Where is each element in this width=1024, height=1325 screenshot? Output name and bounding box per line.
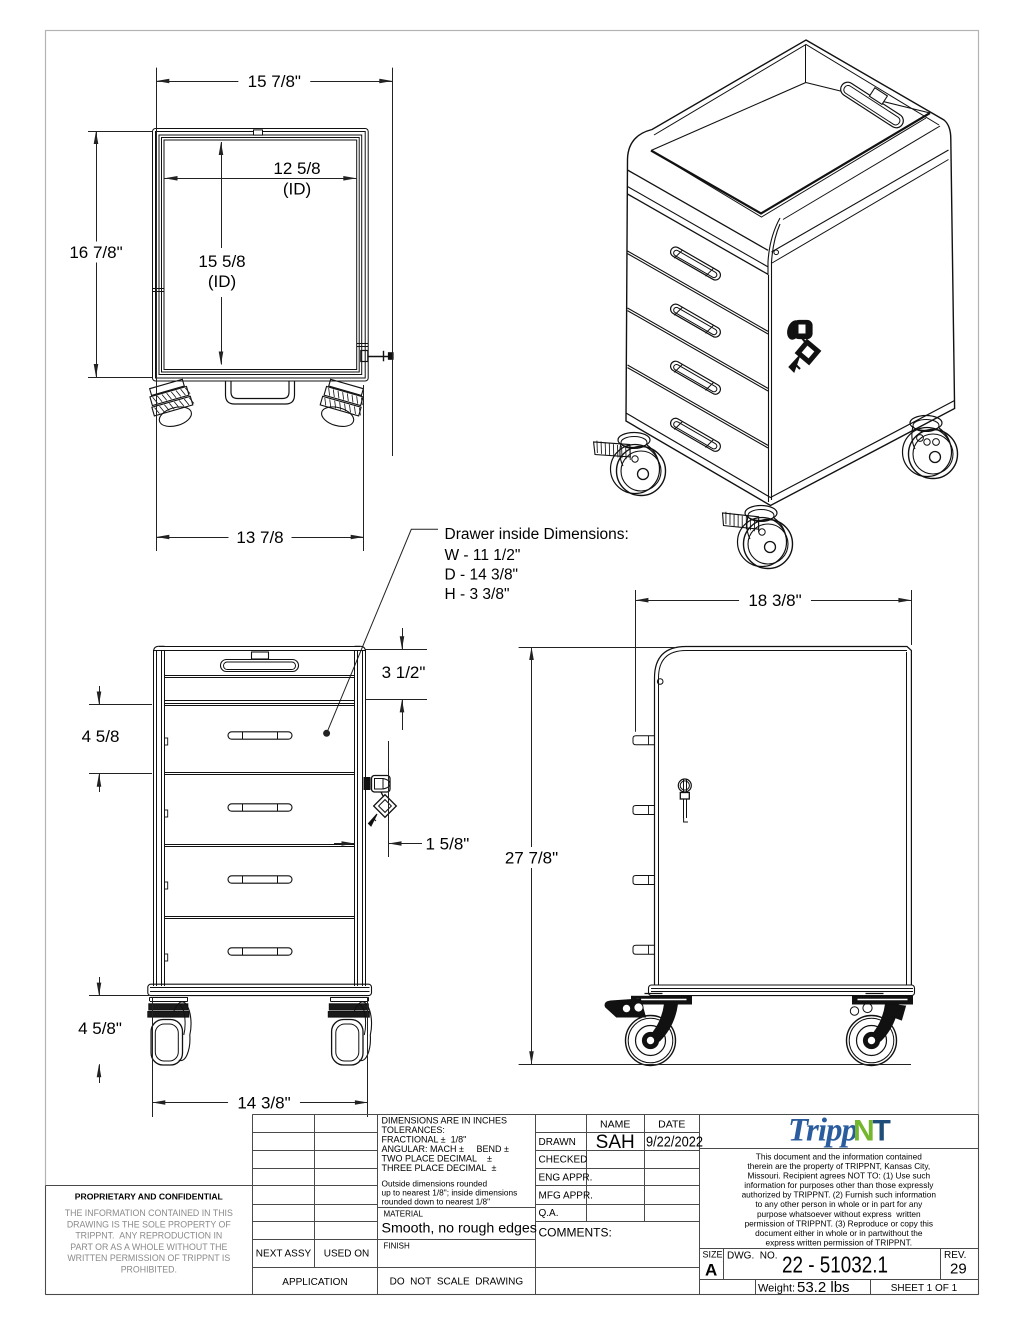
svg-text:TRIPPNT. ANY REPRODUCTION IN: TRIPPNT. ANY REPRODUCTION IN (75, 1231, 222, 1241)
svg-text:N: N (853, 1115, 875, 1148)
svg-text:H - 3 3/8": H - 3 3/8" (445, 586, 510, 603)
svg-text:14 3/8": 14 3/8" (237, 1093, 290, 1112)
svg-text:MFG APPR.: MFG APPR. (539, 1191, 593, 1202)
svg-text:therein are the property of TR: therein are the property of TRIPPNT, Kan… (747, 1161, 930, 1171)
svg-text:document either in whole or in: document either in whole or in partwitho… (755, 1228, 923, 1238)
svg-text:Missouri. Recipient agrees NOT: Missouri. Recipient agrees NOT TO: (1) U… (747, 1171, 930, 1181)
svg-text:16 7/8": 16 7/8" (69, 243, 122, 262)
svg-text:W - 11 1/2": W - 11 1/2" (445, 547, 521, 564)
svg-text:WRITTEN PERMISSION OF TRIPPNT: WRITTEN PERMISSION OF TRIPPNT IS (67, 1253, 230, 1263)
svg-text:4 5/8: 4 5/8 (82, 727, 120, 746)
svg-text:authorized by TRIPPNT. (2) Fur: authorized by TRIPPNT. (2) Furnish such … (742, 1190, 937, 1200)
svg-text:22 - 51032.1: 22 - 51032.1 (782, 1252, 888, 1278)
svg-text:A: A (705, 1261, 717, 1280)
svg-text:NAME: NAME (600, 1119, 630, 1131)
svg-text:DATE: DATE (658, 1119, 685, 1131)
svg-text:PART OR AS A WHOLE WITHOUT THE: PART OR AS A WHOLE WITHOUT THE (70, 1242, 227, 1252)
svg-text:permission of TRIPPNT. (3) Rep: permission of TRIPPNT. (3) Reproduce or … (745, 1218, 933, 1228)
svg-text:TWO PLACE DECIMAL ±: TWO PLACE DECIMAL ± (382, 1154, 493, 1164)
svg-text:to any other person in whole o: to any other person in whole or in part … (755, 1199, 923, 1209)
svg-text:FINISH: FINISH (384, 1242, 410, 1251)
svg-text:Tripp: Tripp (788, 1113, 857, 1149)
svg-text:27 7/8": 27 7/8" (505, 848, 558, 867)
svg-text:NEXT ASSY: NEXT ASSY (256, 1249, 312, 1260)
svg-text:PROPRIETARY AND CONFIDENTIAL: PROPRIETARY AND CONFIDENTIAL (75, 1192, 223, 1202)
svg-text:13 7/8: 13 7/8 (236, 528, 283, 547)
svg-text:rounded down to nearest 1/8": rounded down to nearest 1/8" (382, 1197, 491, 1207)
svg-text:Q.A.: Q.A. (539, 1208, 559, 1219)
svg-text:29: 29 (950, 1261, 967, 1278)
svg-text:THE INFORMATION CONTAINED IN T: THE INFORMATION CONTAINED IN THIS (65, 1208, 233, 1218)
svg-text:USED ON: USED ON (324, 1249, 370, 1260)
svg-text:REV.: REV. (944, 1250, 966, 1261)
svg-text:FRACTIONAL ± 1/8": FRACTIONAL ± 1/8" (382, 1135, 467, 1145)
svg-text:PROHIBITED.: PROHIBITED. (121, 1265, 177, 1275)
svg-text:COMMENTS:: COMMENTS: (539, 1226, 612, 1240)
svg-text:9/22/2022: 9/22/2022 (646, 1134, 703, 1151)
svg-text:Drawer inside Dimensions:: Drawer inside Dimensions: (445, 526, 629, 543)
svg-text:THREE PLACE DECIMAL ±: THREE PLACE DECIMAL ± (382, 1163, 497, 1173)
svg-text:APPLICATION: APPLICATION (282, 1277, 347, 1288)
svg-text:53.2 lbs: 53.2 lbs (797, 1279, 850, 1296)
svg-text:1 5/8": 1 5/8" (426, 835, 470, 854)
svg-text:ANGULAR: MACH ± BEND ±: ANGULAR: MACH ± BEND ± (382, 1144, 509, 1154)
svg-text:TOLERANCES:: TOLERANCES: (382, 1125, 445, 1135)
svg-text:DRAWN: DRAWN (539, 1137, 576, 1148)
svg-text:DWG. NO.: DWG. NO. (727, 1251, 778, 1262)
svg-text:DRAWING IS THE SOLE PROPERTY O: DRAWING IS THE SOLE PROPERTY OF (67, 1219, 232, 1229)
svg-text:SHEET 1 OF 1: SHEET 1 OF 1 (891, 1283, 958, 1294)
svg-text:This document and the informat: This document and the information contai… (756, 1152, 922, 1162)
svg-text:CHECKED: CHECKED (539, 1155, 588, 1166)
svg-text:Smooth, no rough edges: Smooth, no rough edges (382, 1221, 537, 1237)
svg-text:ENG APPR.: ENG APPR. (539, 1173, 593, 1184)
svg-text:(ID): (ID) (283, 180, 311, 199)
svg-text:DIMENSIONS ARE IN INCHES: DIMENSIONS ARE IN INCHES (382, 1116, 508, 1126)
svg-text:4 5/8": 4 5/8" (78, 1019, 122, 1038)
svg-text:3 1/2": 3 1/2" (382, 663, 426, 682)
svg-text:T: T (873, 1115, 891, 1148)
svg-text:12 5/8: 12 5/8 (273, 159, 320, 178)
svg-text:15 5/8: 15 5/8 (198, 252, 245, 271)
svg-text:18 3/8": 18 3/8" (748, 591, 801, 610)
svg-text:MATERIAL: MATERIAL (384, 1210, 424, 1219)
svg-text:information for purposes other: information for purposes other than thos… (744, 1180, 934, 1190)
svg-text:purpose whatsoever without exp: purpose whatsoever without express writt… (757, 1209, 921, 1219)
svg-text:(ID): (ID) (208, 272, 236, 291)
svg-text:SAH: SAH (596, 1132, 635, 1153)
svg-text:SIZE: SIZE (703, 1250, 723, 1260)
svg-text:15 7/8": 15 7/8" (248, 72, 301, 91)
svg-text:Weight:: Weight: (758, 1283, 795, 1295)
svg-text:express written permission of: express written permission of TRIPPNT. (766, 1238, 912, 1248)
svg-text:DO NOT SCALE DRAWING: DO NOT SCALE DRAWING (390, 1277, 524, 1288)
svg-text:D - 14 3/8": D - 14 3/8" (445, 567, 519, 584)
